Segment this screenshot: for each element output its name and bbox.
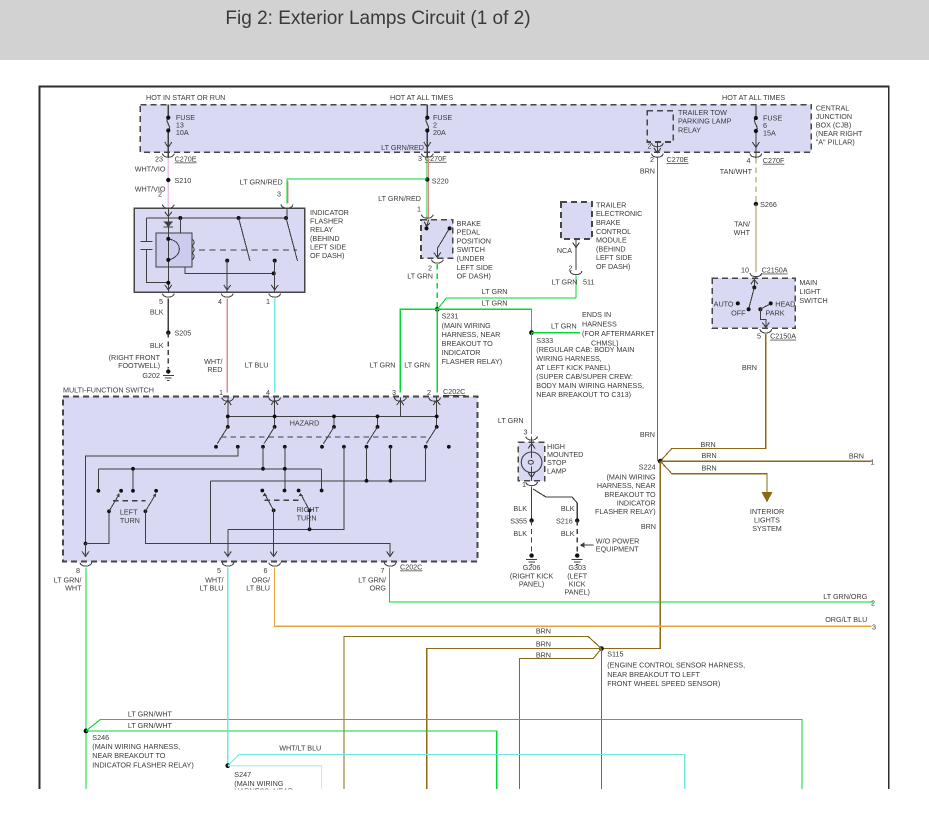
svg-text:S266: S266 xyxy=(760,200,777,209)
svg-text:NEAR BREAKOUT TO: NEAR BREAKOUT TO xyxy=(92,751,166,760)
svg-text:15A: 15A xyxy=(763,129,776,138)
svg-text:MULTI-FUNCTION SWITCH: MULTI-FUNCTION SWITCH xyxy=(63,386,154,395)
svg-text:10: 10 xyxy=(741,266,749,275)
svg-text:LT GRN: LT GRN xyxy=(404,360,430,369)
svg-text:23: 23 xyxy=(155,155,163,164)
svg-text:G202: G202 xyxy=(142,371,160,380)
svg-text:WHT/LT BLU: WHT/LT BLU xyxy=(279,743,321,752)
svg-text:S355: S355 xyxy=(510,517,527,526)
svg-text:HARNESS, NEAR: HARNESS, NEAR xyxy=(442,330,501,339)
svg-text:C2150A: C2150A xyxy=(770,332,796,341)
svg-text:BRN: BRN xyxy=(536,639,551,648)
svg-text:3: 3 xyxy=(524,427,528,436)
svg-text:(MAIN WIRING HARNESS,: (MAIN WIRING HARNESS, xyxy=(92,742,180,751)
svg-text:S115: S115 xyxy=(607,650,623,659)
svg-text:(MAIN WIRING: (MAIN WIRING xyxy=(442,321,492,330)
svg-text:TURN: TURN xyxy=(297,514,317,523)
svg-text:BRN: BRN xyxy=(742,363,757,372)
svg-text:2: 2 xyxy=(648,142,652,151)
svg-text:1: 1 xyxy=(266,297,270,306)
svg-text:LT BLU: LT BLU xyxy=(246,584,270,593)
svg-text:S220: S220 xyxy=(432,177,449,186)
svg-text:C202C: C202C xyxy=(443,387,465,396)
svg-text:LT GRN: LT GRN xyxy=(482,299,508,308)
svg-text:S210: S210 xyxy=(175,176,192,185)
svg-text:AUTO: AUTO xyxy=(714,299,734,308)
svg-text:WHT: WHT xyxy=(65,584,82,593)
svg-text:LT GRN/WHT: LT GRN/WHT xyxy=(128,721,173,730)
svg-text:(FOR AFTERMARKET: (FOR AFTERMARKET xyxy=(582,329,655,338)
svg-text:S247: S247 xyxy=(234,770,251,779)
svg-text:RIGHT: RIGHT xyxy=(297,505,320,514)
svg-text:SWITCH: SWITCH xyxy=(799,296,827,305)
svg-text:BRN: BRN xyxy=(702,464,717,473)
svg-text:EQUIPMENT: EQUIPMENT xyxy=(596,545,639,554)
svg-text:S224: S224 xyxy=(639,463,656,472)
svg-text:8: 8 xyxy=(76,566,80,575)
svg-text:4: 4 xyxy=(266,388,270,397)
svg-text:LT GRN: LT GRN xyxy=(498,416,524,425)
svg-text:LT GRN: LT GRN xyxy=(552,278,578,287)
svg-text:4: 4 xyxy=(218,297,222,306)
svg-text:C270E: C270E xyxy=(667,155,689,164)
svg-text:LT GRN: LT GRN xyxy=(370,360,396,369)
svg-text:SYSTEM: SYSTEM xyxy=(752,524,782,533)
svg-text:BRN: BRN xyxy=(849,452,864,461)
svg-text:1: 1 xyxy=(417,205,421,214)
svg-text:5: 5 xyxy=(217,566,221,575)
svg-text:BRN: BRN xyxy=(641,522,656,531)
svg-text:(BEHIND: (BEHIND xyxy=(596,244,626,253)
svg-text:HARNESS: HARNESS xyxy=(582,320,617,329)
svg-text:5: 5 xyxy=(757,332,761,341)
svg-text:RED: RED xyxy=(207,365,222,374)
svg-text:BRN: BRN xyxy=(702,451,717,460)
svg-text:7: 7 xyxy=(381,566,385,575)
svg-text:1: 1 xyxy=(871,457,875,466)
svg-text:LT GRN: LT GRN xyxy=(407,272,433,281)
svg-text:OF DASH): OF DASH) xyxy=(457,272,491,281)
svg-text:1: 1 xyxy=(522,480,526,489)
svg-text:LT GRN/WHT: LT GRN/WHT xyxy=(128,709,173,718)
svg-text:"A" PILLAR): "A" PILLAR) xyxy=(816,138,855,147)
svg-text:BRN: BRN xyxy=(536,650,551,659)
svg-text:(ENGINE CONTROL SENSOR HARNESS: (ENGINE CONTROL SENSOR HARNESS, xyxy=(607,660,745,669)
svg-text:LEFT SIDE: LEFT SIDE xyxy=(596,253,632,262)
svg-text:(MAIN WIRING: (MAIN WIRING xyxy=(606,473,656,482)
svg-text:POSITION: POSITION xyxy=(457,236,491,245)
svg-text:HARNESS, NEAR: HARNESS, NEAR xyxy=(597,481,656,490)
svg-text:S205: S205 xyxy=(175,329,192,338)
svg-text:S216: S216 xyxy=(556,517,573,526)
svg-text:NEAR BREAKOUT TO LEFT: NEAR BREAKOUT TO LEFT xyxy=(607,670,700,679)
svg-text:LT BLU: LT BLU xyxy=(200,584,224,593)
svg-text:HEAD: HEAD xyxy=(775,299,795,308)
svg-text:BLK: BLK xyxy=(150,308,164,317)
svg-text:3: 3 xyxy=(392,388,396,397)
svg-text:OFF: OFF xyxy=(731,308,746,317)
svg-text:3: 3 xyxy=(872,623,876,632)
svg-text:C202C: C202C xyxy=(400,563,422,572)
svg-text:WIRING HARNESS,: WIRING HARNESS, xyxy=(536,354,602,363)
svg-text:ELECTRONIC: ELECTRONIC xyxy=(596,209,642,218)
svg-text:(REGULAR CAB: BODY MAIN: (REGULAR CAB: BODY MAIN xyxy=(536,345,634,354)
svg-text:BREAKOUT TO: BREAKOUT TO xyxy=(442,339,494,348)
svg-text:BLK: BLK xyxy=(513,529,527,538)
svg-text:BRN: BRN xyxy=(536,626,551,635)
svg-text:HOT AT ALL TIMES: HOT AT ALL TIMES xyxy=(722,93,785,102)
svg-text:Fig 2: Exterior Lamps Circuit: Fig 2: Exterior Lamps Circuit (1 of 2) xyxy=(225,8,530,29)
svg-text:C270E: C270E xyxy=(175,155,197,164)
svg-text:LT GRN: LT GRN xyxy=(482,287,508,296)
svg-text:OF DASH): OF DASH) xyxy=(310,251,344,260)
svg-text:OF DASH): OF DASH) xyxy=(596,262,630,271)
svg-text:LT BLU: LT BLU xyxy=(245,360,269,369)
svg-text:WHT/VIO: WHT/VIO xyxy=(135,165,166,174)
svg-text:BRN: BRN xyxy=(701,440,716,449)
svg-text:CONTROL: CONTROL xyxy=(596,227,631,236)
svg-text:BLK: BLK xyxy=(513,504,527,513)
svg-text:LIGHT: LIGHT xyxy=(799,287,821,296)
svg-text:PEDAL: PEDAL xyxy=(457,228,481,237)
svg-text:ORG: ORG xyxy=(370,584,387,593)
svg-text:LT GRN/ORG: LT GRN/ORG xyxy=(823,592,867,601)
svg-text:LT GRN/RED: LT GRN/RED xyxy=(381,143,424,152)
svg-text:HAZARD: HAZARD xyxy=(290,419,320,428)
svg-text:NEAR BREAKOUT TO C313): NEAR BREAKOUT TO C313) xyxy=(536,390,631,399)
svg-text:LT GRN/RED: LT GRN/RED xyxy=(240,178,283,187)
svg-text:6: 6 xyxy=(264,566,268,575)
svg-text:PARK: PARK xyxy=(766,308,785,317)
svg-text:BLK: BLK xyxy=(561,504,575,513)
svg-text:BRAKE: BRAKE xyxy=(457,219,482,228)
svg-text:1: 1 xyxy=(219,388,223,397)
svg-text:FLASHER RELAY): FLASHER RELAY) xyxy=(595,507,656,516)
svg-text:HOT IN START OR RUN: HOT IN START OR RUN xyxy=(146,93,225,102)
svg-text:ORG/LT BLU: ORG/LT BLU xyxy=(825,615,867,624)
svg-text:BLK: BLK xyxy=(150,341,164,350)
svg-text:5: 5 xyxy=(159,297,163,306)
svg-text:CHMSL): CHMSL) xyxy=(591,339,619,348)
svg-text:S333: S333 xyxy=(536,336,553,345)
svg-text:MODULE: MODULE xyxy=(596,236,627,245)
svg-text:(UNDER: (UNDER xyxy=(457,254,485,263)
svg-text:10A: 10A xyxy=(176,128,189,137)
svg-text:2: 2 xyxy=(871,599,875,608)
svg-text:PANEL): PANEL) xyxy=(564,588,589,597)
svg-text:FOOTWELL): FOOTWELL) xyxy=(118,361,160,370)
svg-text:BRAKE: BRAKE xyxy=(596,218,621,227)
svg-text:TRAILER TOW: TRAILER TOW xyxy=(678,108,727,117)
svg-text:BRN: BRN xyxy=(640,166,655,175)
svg-text:511: 511 xyxy=(583,278,594,287)
svg-text:ENDS IN: ENDS IN xyxy=(582,310,611,319)
svg-text:3: 3 xyxy=(277,190,281,199)
svg-text:2: 2 xyxy=(650,155,654,164)
svg-text:PANEL): PANEL) xyxy=(519,580,544,589)
svg-text:NCA: NCA xyxy=(557,246,572,255)
svg-text:INDICATOR: INDICATOR xyxy=(442,348,481,357)
svg-text:4: 4 xyxy=(747,156,751,165)
svg-text:LT GRN/RED: LT GRN/RED xyxy=(378,194,421,203)
svg-text:TURN: TURN xyxy=(120,516,140,525)
svg-text:TAN/WHT: TAN/WHT xyxy=(720,167,753,176)
svg-text:AT LEFT KICK PANEL): AT LEFT KICK PANEL) xyxy=(536,363,610,372)
svg-text:BRN: BRN xyxy=(640,430,655,439)
svg-text:BLK: BLK xyxy=(561,529,575,538)
svg-text:2: 2 xyxy=(158,190,162,199)
svg-text:LT GRN: LT GRN xyxy=(551,322,577,331)
svg-text:BODY MAIN WIRING HARNESS,: BODY MAIN WIRING HARNESS, xyxy=(536,381,644,390)
svg-text:(SUPER CAB/SUPER CREW:: (SUPER CAB/SUPER CREW: xyxy=(536,372,633,381)
svg-text:PARKING LAMP: PARKING LAMP xyxy=(678,117,732,126)
svg-text:MAIN: MAIN xyxy=(799,278,817,287)
svg-text:C2150A: C2150A xyxy=(762,266,788,275)
svg-text:20A: 20A xyxy=(433,128,446,137)
svg-text:HOT AT ALL TIMES: HOT AT ALL TIMES xyxy=(390,93,453,102)
svg-text:RELAY: RELAY xyxy=(678,125,701,134)
svg-text:FRONT WHEEL SPEED SENSOR): FRONT WHEEL SPEED SENSOR) xyxy=(607,679,720,688)
svg-text:LAMP: LAMP xyxy=(547,466,567,475)
svg-text:INDICATOR FLASHER RELAY): INDICATOR FLASHER RELAY) xyxy=(92,761,193,770)
svg-text:FLASHER RELAY): FLASHER RELAY) xyxy=(442,357,503,366)
svg-text:C270F: C270F xyxy=(763,156,785,165)
svg-text:TRAILER: TRAILER xyxy=(596,200,626,209)
svg-text:LEFT: LEFT xyxy=(120,507,138,516)
svg-text:SWITCH: SWITCH xyxy=(457,245,485,254)
svg-text:S246: S246 xyxy=(92,733,109,742)
svg-text:BREAKOUT TO: BREAKOUT TO xyxy=(604,490,656,499)
svg-text:3: 3 xyxy=(418,154,422,163)
svg-text:WHT: WHT xyxy=(734,228,751,237)
svg-text:2: 2 xyxy=(427,388,431,397)
svg-text:LEFT SIDE: LEFT SIDE xyxy=(457,263,493,272)
svg-text:S231: S231 xyxy=(442,312,459,321)
